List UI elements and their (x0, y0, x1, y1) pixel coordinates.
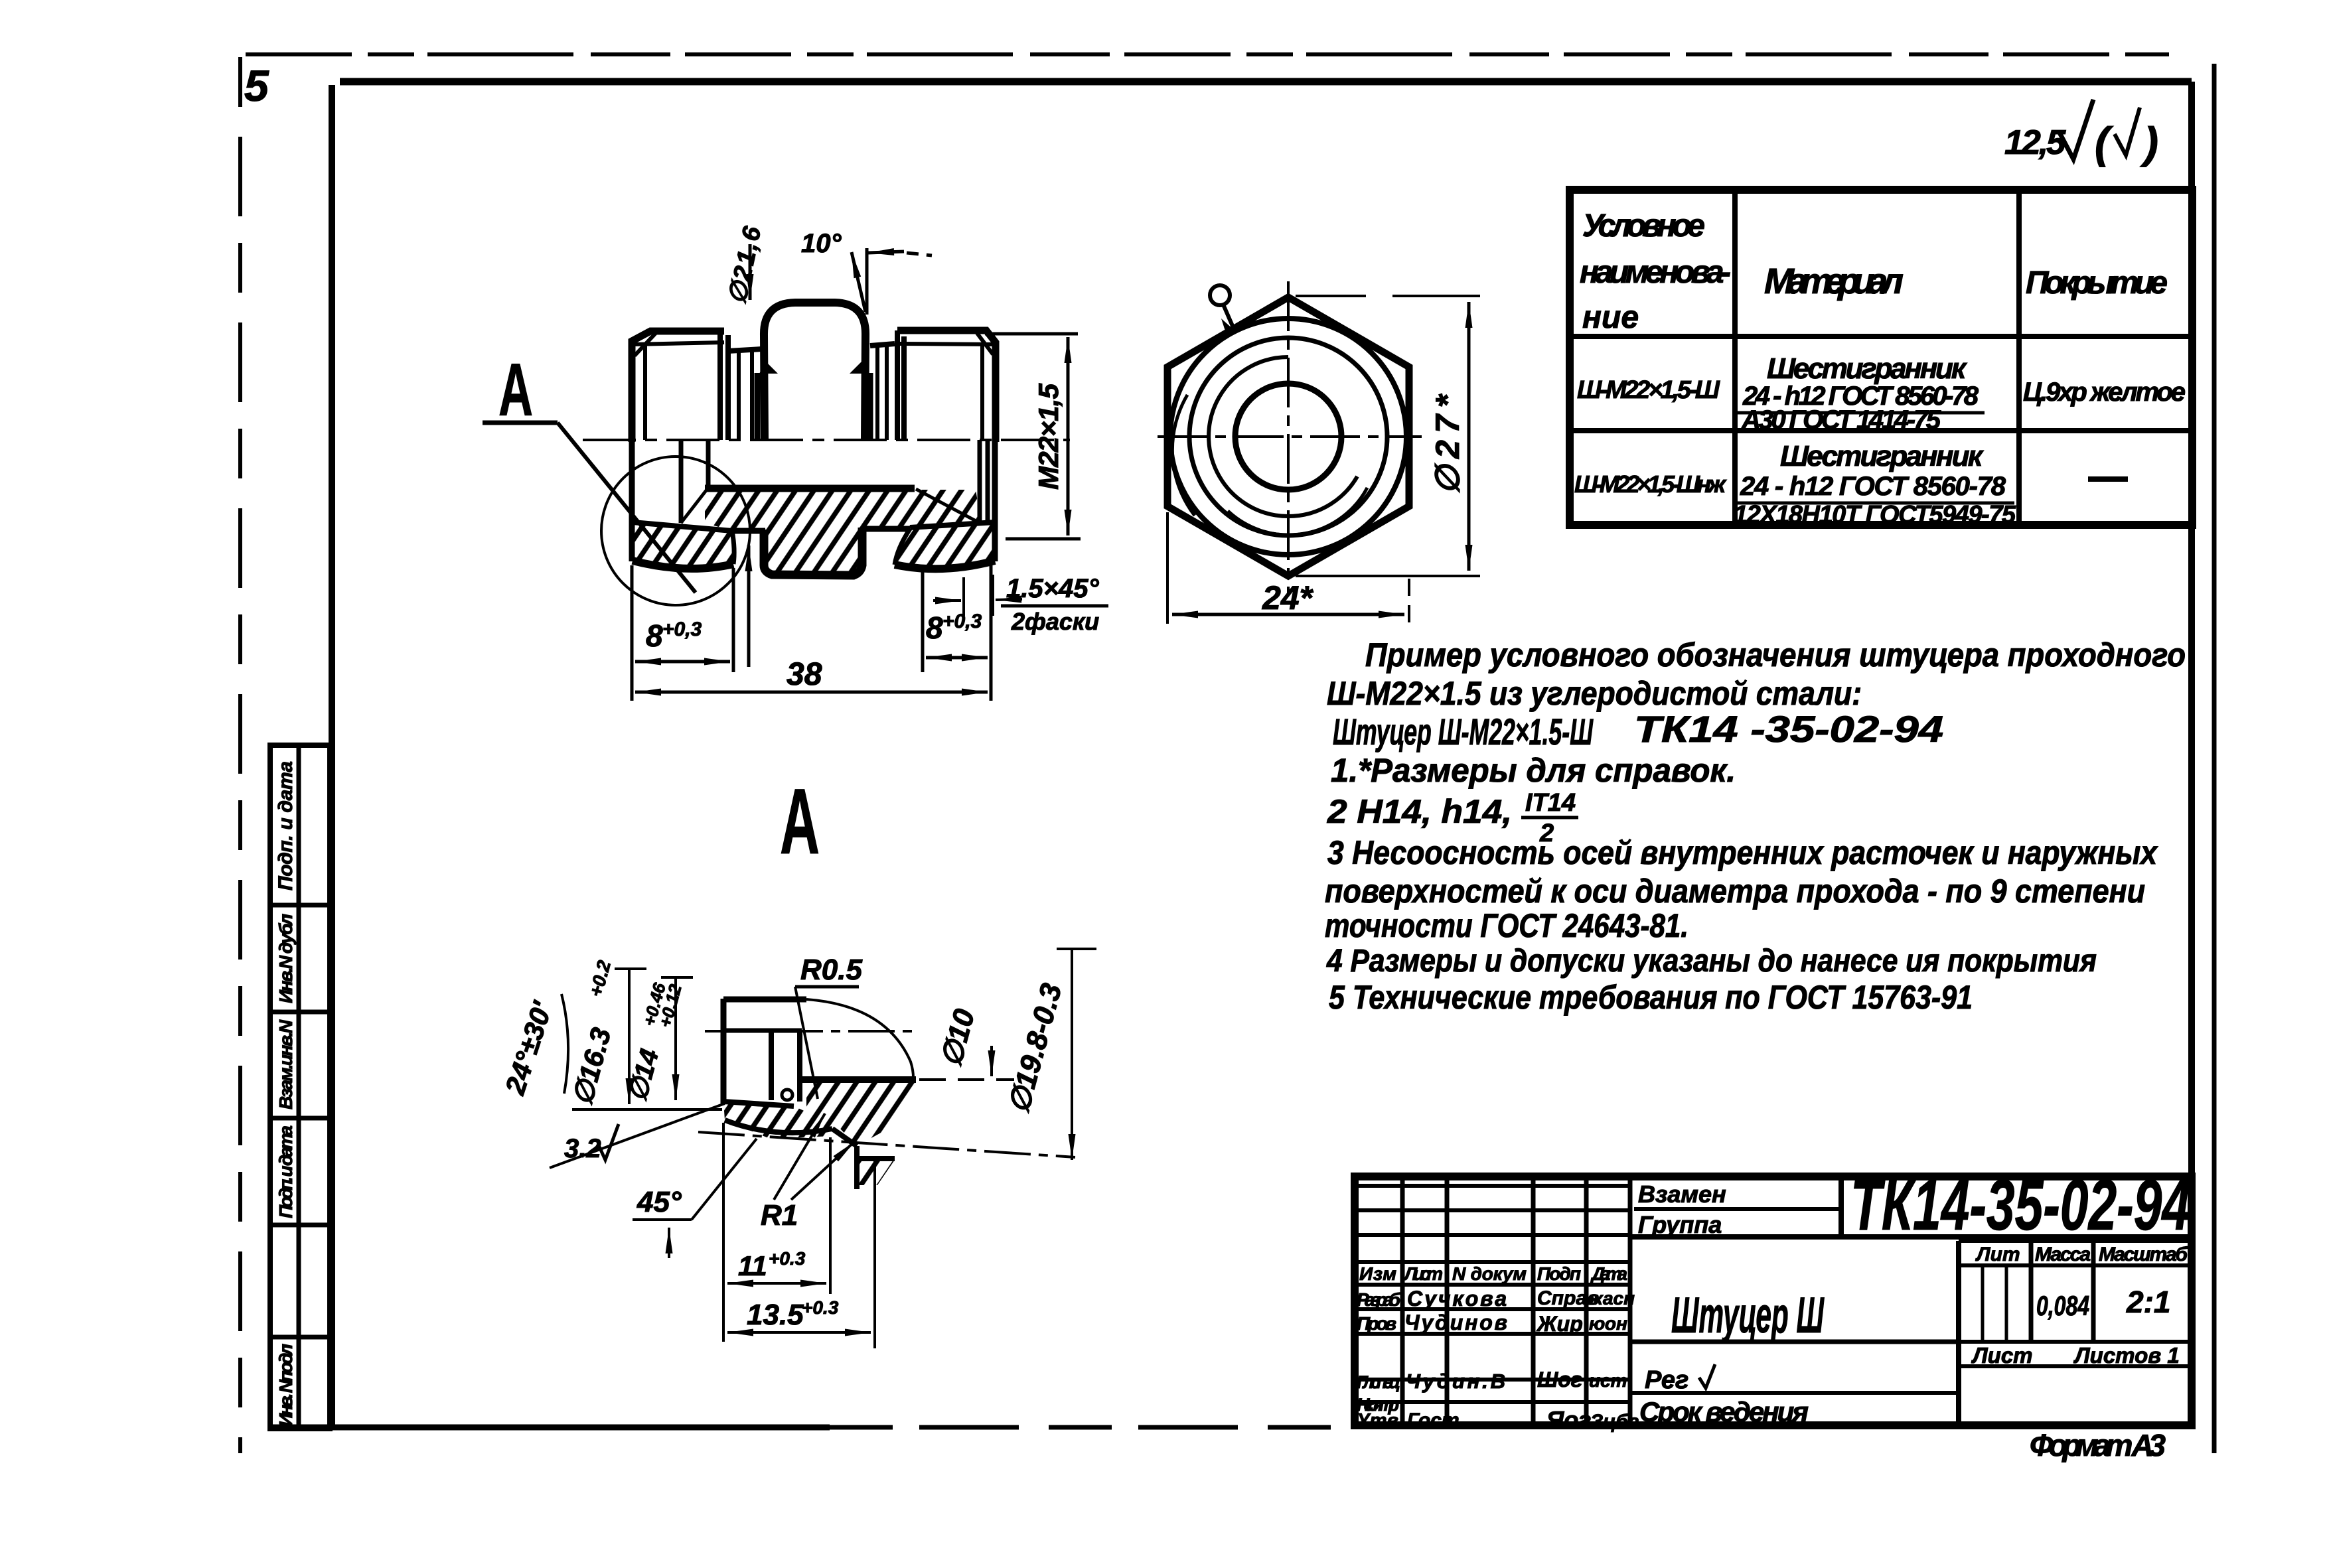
svg-text:+0,3: +0,3 (942, 610, 982, 632)
svg-text:+0.3: +0.3 (802, 1297, 839, 1318)
svg-text:М22×1,5: М22×1,5 (1033, 383, 1064, 490)
svg-text:Дата: Дата (1590, 1263, 1627, 1284)
svg-text:+0,3: +0,3 (662, 618, 702, 640)
svg-text:11: 11 (738, 1250, 767, 1281)
svg-text:Группа: Группа (1638, 1211, 1722, 1238)
svg-text:4 Размеры и допуски указаны до: 4 Размеры и допуски указаны до нанесе ия… (1326, 944, 2097, 979)
svg-text:Условное: Условное (1582, 208, 1705, 244)
svg-text:Ш-М22×1,5-Ш: Ш-М22×1,5-Ш (1577, 376, 1720, 404)
svg-text:ТК14-35-02-94: ТК14-35-02-94 (1850, 1165, 2190, 1245)
svg-text:45°: 45° (637, 1186, 682, 1218)
svg-text:точности ГОСТ 24643-81.: точности ГОСТ 24643-81. (1325, 907, 1688, 944)
svg-text:Покрытие: Покрытие (2026, 265, 2168, 301)
svg-text:Лист: Лист (1971, 1343, 2033, 1368)
svg-text:3.2: 3.2 (564, 1134, 601, 1163)
svg-text:Взам.инв.N: Взам.инв.N (275, 1019, 296, 1109)
svg-text:5: 5 (244, 61, 269, 110)
svg-text:Ш-М22×1,5-Шнж: Ш-М22×1,5-Шнж (1574, 470, 1727, 498)
svg-text:Пров: Пров (1357, 1313, 1396, 1334)
svg-text:А: А (780, 769, 820, 873)
svg-text:Зцба: Зцба (1590, 1411, 1639, 1433)
svg-text:IT14: IT14 (1525, 789, 1576, 817)
svg-text:5 Технические требования по ГО: 5 Технические требования по ГОСТ 15763-9… (1329, 979, 1973, 1016)
svg-text:Материал: Материал (1764, 261, 1904, 301)
svg-text:8: 8 (926, 610, 943, 645)
svg-text:поверхностей к оси диаметра пр: поверхностей к оси диаметра прохода - по… (1325, 873, 2145, 910)
svg-text:Разраб: Разраб (1357, 1289, 1401, 1310)
svg-text:Рег: Рег (1645, 1366, 1688, 1394)
svg-text:Пример условного обозначения ш: Пример условного обозначения штуцера про… (1365, 636, 2186, 674)
svg-text:юон: юон (1589, 1313, 1627, 1334)
svg-text:Срок ведения: Срок ведения (1639, 1396, 1809, 1427)
svg-text:Гост: Гост (1407, 1409, 1460, 1431)
svg-text:Масса: Масса (2035, 1244, 2091, 1265)
svg-text:2 Н14, h14,: 2 Н14, h14, (1327, 793, 1512, 830)
svg-text:R1: R1 (761, 1199, 798, 1232)
svg-text:Изм: Изм (1359, 1263, 1396, 1284)
svg-text:Ц.9хр желтое: Ц.9хр желтое (2023, 378, 2186, 407)
svg-text:Яог: Яог (1546, 1406, 1591, 1433)
svg-text:Шестигранник: Шестигранник (1767, 352, 1968, 385)
svg-text:Гл спец: Гл спец (1357, 1372, 1400, 1392)
svg-text:3 Несоосность осей внутренних: 3 Несоосность осей внутренних расточек и… (1327, 834, 2158, 871)
svg-text:∅27*: ∅27* (1429, 393, 1466, 494)
svg-text:Инв.N дубл: Инв.N дубл (275, 914, 296, 1003)
svg-text:Лист: Лист (1403, 1263, 1443, 1284)
svg-text:Подп. и дата: Подп. и дата (275, 1125, 296, 1218)
svg-text:Сучкова: Сучкова (1407, 1287, 1507, 1311)
svg-text:Утв: Утв (1357, 1410, 1398, 1431)
svg-text:N докум: N докум (1452, 1263, 1527, 1284)
svg-text:Формат А3: Формат А3 (2030, 1428, 2166, 1462)
svg-text:24 - h12 ГОСТ 8560-78: 24 - h12 ГОСТ 8560-78 (1740, 472, 2006, 501)
svg-text:24*: 24* (1262, 579, 1314, 616)
svg-text:Подп: Подп (1537, 1263, 1581, 1284)
svg-text:Жир: Жир (1536, 1312, 1583, 1336)
svg-text:2:1: 2:1 (2126, 1285, 2170, 1319)
svg-text:+0.3: +0.3 (769, 1248, 806, 1269)
svg-text:ист: ист (1589, 1370, 1627, 1391)
svg-text:12,5: 12,5 (2004, 123, 2066, 162)
svg-text:Штуцер Ш: Штуцер Ш (1671, 1287, 1825, 1344)
svg-text:наименова-: наименова- (1580, 255, 1731, 290)
svg-text:Шестигранник: Шестигранник (1780, 440, 1985, 472)
svg-text:0,084: 0,084 (2036, 1290, 2089, 1321)
svg-text:Листов 1: Листов 1 (2073, 1343, 2180, 1368)
svg-text:12Х18Н10Т ГОСТ5949-75: 12Х18Н10Т ГОСТ5949-75 (1734, 501, 2016, 529)
svg-text:8: 8 (646, 618, 663, 653)
svg-text:38: 38 (787, 657, 822, 692)
svg-text:жасн: жасн (1588, 1288, 1635, 1309)
svg-text:2фаски: 2фаски (1011, 608, 1099, 635)
svg-text:ТК14 -35-02-94: ТК14 -35-02-94 (1634, 708, 1943, 750)
svg-text:Подп. и дата: Подп. и дата (275, 761, 297, 891)
svg-text:Лит: Лит (1975, 1244, 2020, 1265)
svg-text:R0.5: R0.5 (800, 954, 862, 986)
svg-text:10°: 10° (801, 229, 842, 258)
svg-text:Ш-М22×1.5 из углеродистой стал: Ш-М22×1.5 из углеродистой стали: (1327, 675, 1862, 712)
svg-text:Инв. Nподл: Инв. Nподл (275, 1344, 296, 1427)
svg-text:А30 ГОСТ 1414-75: А30 ГОСТ 1414-75 (1741, 405, 1941, 435)
svg-text:Шог: Шог (1537, 1368, 1582, 1391)
svg-text:А: А (498, 348, 533, 431)
svg-text:13.5: 13.5 (747, 1299, 804, 1331)
svg-text:1.*Размеры для справок.: 1.*Размеры для справок. (1331, 752, 1736, 789)
svg-text:Взамен: Взамен (1638, 1180, 1726, 1208)
svg-text:Штуцер Ш-М22×1.5-Ш: Штуцер Ш-М22×1.5-Ш (1333, 711, 1594, 752)
svg-text:Масштаб: Масштаб (2099, 1244, 2188, 1265)
svg-text:ние: ние (1582, 300, 1639, 335)
